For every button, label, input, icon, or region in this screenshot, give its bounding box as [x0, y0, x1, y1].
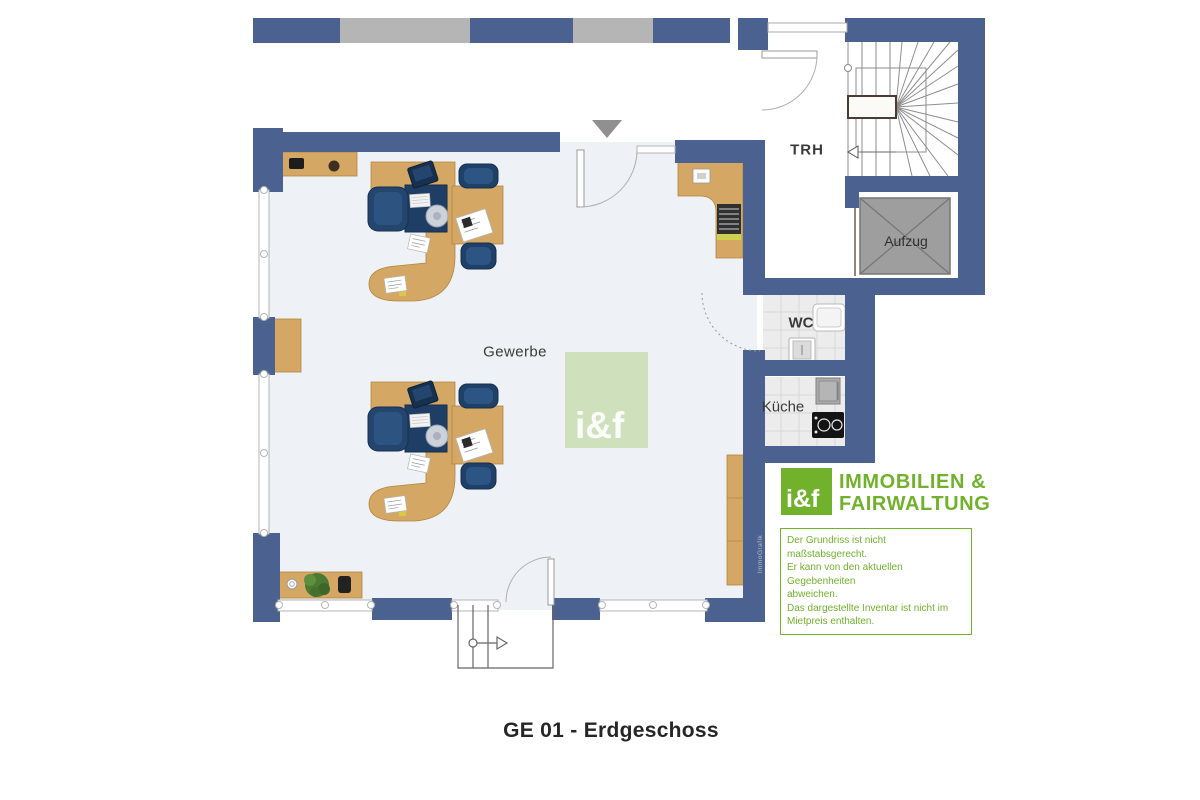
facade-window [573, 18, 653, 43]
company-name: IMMOBILIEN & FAIRWALTUNG [839, 471, 990, 515]
sideboard-bottom-left [278, 572, 362, 598]
entrance-arrow-icon [592, 120, 622, 138]
company-name-line2: FAIRWALTUNG [839, 493, 990, 515]
logo-mark-text: i&f [781, 487, 819, 515]
room-label-gewerbe: Gewerbe [483, 344, 547, 361]
gewerbe-top-wall [275, 132, 560, 152]
camera-object-icon [289, 158, 304, 169]
bag-icon [338, 576, 351, 593]
stair-bottom-wall [845, 176, 958, 192]
trh-door [762, 51, 817, 110]
toilet-icon [789, 338, 815, 362]
bottom-wall-segment [372, 598, 452, 620]
cooktop-icon [812, 412, 844, 438]
sideboard-top-left [277, 152, 357, 176]
stairs-direction-arrow [497, 637, 507, 649]
wall-watermark-text: ImmoGrafik [756, 519, 766, 589]
disclaimer-line: Mietpreis enthalten. [787, 615, 965, 629]
outer-wall-segment [470, 18, 573, 43]
company-logo-icon: i&f [781, 468, 832, 515]
disclaimer-box: Der Grundriss ist nicht maßstabsgerecht.… [780, 528, 972, 635]
staircase [845, 42, 959, 176]
window-bottom-2 [452, 600, 498, 611]
outer-wall-segment [253, 18, 340, 43]
wc-kitchen-right-wall [845, 278, 875, 463]
disclaimer-line: abweichen. [787, 588, 965, 602]
cabinet-left-mid [273, 319, 301, 372]
facade-window [340, 18, 470, 43]
bowl-icon [329, 161, 340, 172]
center-watermark-text: i&f [565, 407, 624, 448]
stair-fan-lines [896, 42, 958, 176]
wall-stub [845, 192, 859, 208]
disclaimer-line: Er kann von den aktuellen Gegebenheiten [787, 561, 965, 588]
disclaimer-line: Das dargestellte Inventar ist nicht im [787, 602, 965, 616]
right-outer-wall [958, 18, 985, 295]
left-corner-pillar [253, 533, 280, 622]
center-watermark: i&f [565, 352, 648, 448]
room-label-wc: WC [789, 315, 814, 332]
external-stairs [458, 605, 553, 668]
room-label-aufzug: Aufzug [884, 233, 928, 249]
left-wall-mid [253, 317, 275, 375]
company-name-line1: IMMOBILIEN & [839, 471, 990, 493]
page-title: GE 01 - Erdgeschoss [503, 719, 719, 743]
gewerbe-right-wall-upper [743, 140, 765, 295]
bottom-wall-segment [552, 598, 600, 620]
fridge-icon [816, 378, 840, 404]
wall-pillar [738, 18, 768, 50]
stair-direction-arrow [848, 146, 858, 158]
stair-landing [848, 96, 896, 118]
cup-icon [287, 579, 297, 589]
gewerbe-floor [265, 142, 757, 610]
room-label-kueche: Küche [762, 399, 805, 416]
floorplan-page: Gewerbe TRH Aufzug WC Küche i&f ImmoGraf… [0, 0, 1200, 800]
disclaimer-line: Der Grundriss ist nicht maßstabsgerecht. [787, 534, 965, 561]
bottom-corner-pillar [705, 598, 765, 622]
outer-wall-segment [653, 18, 730, 43]
shelf-unit-icon [717, 204, 741, 240]
kitchen-bottom-wall [755, 446, 875, 463]
room-label-trh: TRH [790, 142, 824, 159]
wc-kitchen-divider [755, 360, 845, 376]
window-trh-top [768, 23, 847, 32]
